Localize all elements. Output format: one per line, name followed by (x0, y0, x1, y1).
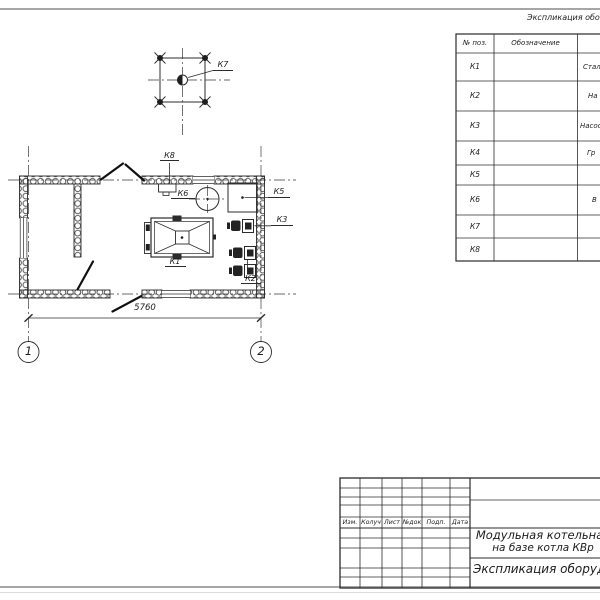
drawing-canvas (0, 0, 600, 600)
table-row-name: Насос (580, 111, 600, 141)
dimension-label: 5760 (115, 304, 175, 313)
table-row-pos: К3 (456, 111, 494, 141)
axis-bubbles (18, 342, 272, 363)
equipment-table-header-pos: № поз. (456, 34, 494, 53)
equipment-table-title: Экспликация обору (527, 14, 600, 23)
title-block-col-list: Лист (382, 517, 402, 528)
table-row-name: В (592, 185, 597, 215)
title-block-col-podp: Подп. (422, 517, 450, 528)
table-row-pos: К7 (456, 215, 494, 238)
table-row-pos: К5 (456, 165, 494, 185)
title-block-col-data: Дата (450, 517, 470, 528)
equipment-table-header-designation: Обозначение (494, 34, 577, 53)
table-row-pos: К8 (456, 238, 494, 261)
plan-label-k6: К6 (171, 190, 195, 200)
plan-label-k5: К5 (268, 188, 290, 198)
title-block-col-ndok: №док (402, 517, 422, 528)
table-row-name: На (588, 81, 598, 111)
table-row-pos: К2 (456, 81, 494, 111)
table-row-name: Стал (583, 53, 600, 81)
table-row-pos: К4 (456, 141, 494, 165)
door-swings (78, 164, 145, 312)
table-row-pos: К6 (456, 185, 494, 215)
title-block-col-izm: Изм. (340, 517, 360, 528)
dimension-line (25, 314, 266, 322)
axis-bubble-2-label: 2 (251, 345, 272, 358)
plan-label-k3: К3 (271, 216, 293, 226)
plan-label-k8: К8 (160, 152, 179, 162)
table-row-pos: К1 (456, 53, 494, 81)
title-block-col-kol: Колуч (360, 517, 382, 528)
plan-label-k7: К7 (213, 61, 233, 71)
project-title-line2: на базе котла КВр (470, 543, 600, 555)
project-title-line1: Модульная котельная (470, 529, 600, 542)
plan-label-k1: К1 (165, 258, 186, 268)
plan-label-k2: К2 (241, 275, 261, 285)
axis-bubble-1-label: 1 (18, 345, 39, 358)
table-row-name: Гр (587, 141, 595, 165)
k1-boiler-symbol (145, 216, 217, 260)
k2-pump-symbols (229, 247, 256, 278)
document-name: Экспликация оборудован (473, 563, 600, 576)
